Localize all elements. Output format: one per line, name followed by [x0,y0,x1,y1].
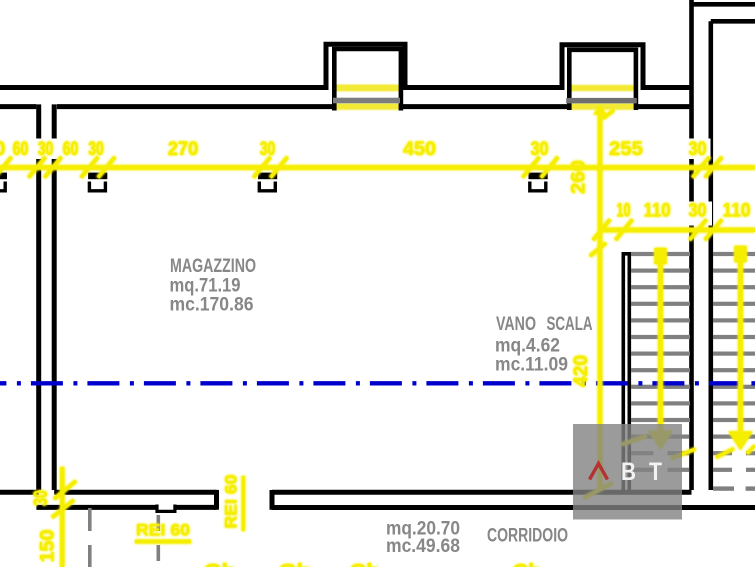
svg-text:VANO: VANO [496,313,536,335]
svg-text:10: 10 [617,201,631,222]
svg-text:260: 260 [569,160,590,194]
svg-text:150: 150 [38,530,59,563]
svg-text:REI 60: REI 60 [222,475,241,529]
svg-text:Ch: Ch [513,561,542,567]
svg-text:30: 30 [531,139,549,160]
svg-text:30: 30 [260,139,276,160]
svg-text:0: 0 [0,139,5,160]
svg-text:30: 30 [31,490,52,506]
svg-text:30: 30 [88,139,104,160]
svg-text:110: 110 [644,201,671,222]
svg-text:SCALA: SCALA [547,313,593,335]
svg-text:CORRIDOIO: CORRIDOIO [487,525,568,547]
svg-text:B: B [621,458,636,486]
svg-text:255: 255 [609,139,643,160]
svg-text:30: 30 [689,139,707,160]
svg-text:420: 420 [571,355,592,387]
svg-text:Ch: Ch [350,561,381,567]
svg-text:60: 60 [13,139,29,160]
svg-text:30: 30 [689,201,707,222]
svg-text:mc.11.09: mc.11.09 [495,354,568,376]
svg-text:270: 270 [168,139,199,160]
svg-text:Ch: Ch [204,561,237,567]
svg-text:Ch: Ch [279,561,312,567]
svg-text:REI 60: REI 60 [136,521,190,540]
svg-text:60: 60 [63,139,79,160]
svg-text:T: T [649,458,662,486]
svg-text:30: 30 [38,139,54,160]
svg-text:110: 110 [723,201,751,222]
svg-text:mc.49.68: mc.49.68 [386,535,460,557]
svg-text:mc.170.86: mc.170.86 [170,294,254,316]
svg-text:450: 450 [403,139,436,160]
